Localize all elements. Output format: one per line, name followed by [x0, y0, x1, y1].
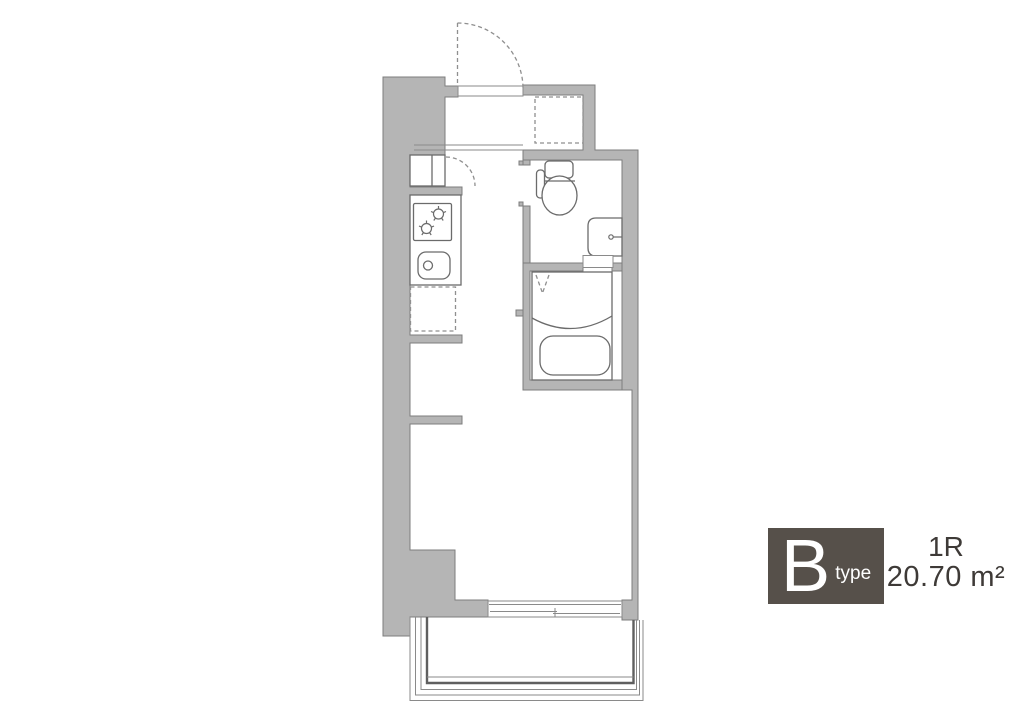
entry-storage-dashed-box	[535, 97, 583, 143]
entry-door-swing-arc	[458, 23, 524, 89]
balcony-inner-edge	[427, 617, 634, 683]
toilet-door-jamb-bottom	[519, 202, 523, 206]
unit-type-suffix: type	[835, 563, 871, 585]
bath-folding-door	[536, 275, 549, 293]
balcony-rail-outer	[410, 617, 643, 701]
unit-layout: 1R	[884, 531, 1008, 562]
wall-toilet-corridor	[523, 206, 530, 263]
floor-plan-page: B type 1R 20.70 m²	[0, 0, 1024, 725]
bathroom	[532, 272, 612, 380]
south-opening	[488, 601, 622, 617]
bathtub	[540, 336, 610, 375]
unit-area: 20.70 m²	[884, 562, 1008, 593]
wall-tick-bath	[516, 310, 523, 316]
kitchen	[410, 195, 461, 331]
balcony	[410, 617, 643, 701]
closet-box	[410, 155, 445, 186]
toilet-bowl	[542, 176, 577, 215]
unit-type-letter: B	[781, 528, 830, 604]
entry-door-sill	[458, 86, 523, 96]
toilet-door-jamb-top	[519, 161, 523, 165]
kitchen-sink	[418, 252, 450, 279]
gas-stove	[414, 204, 452, 241]
unit-info: 1R 20.70 m²	[884, 531, 1008, 593]
wall-toilet-door-head	[523, 160, 530, 165]
closet-door-arc	[446, 157, 475, 186]
bath-door-sill	[583, 256, 613, 268]
toilet-room	[537, 161, 623, 268]
bath-floor-curve	[532, 316, 612, 329]
refrigerator-space	[411, 287, 456, 331]
balcony-rail-inner	[421, 617, 637, 690]
unit-badge: B type	[768, 528, 884, 604]
floor-plan-drawing	[0, 0, 1024, 725]
